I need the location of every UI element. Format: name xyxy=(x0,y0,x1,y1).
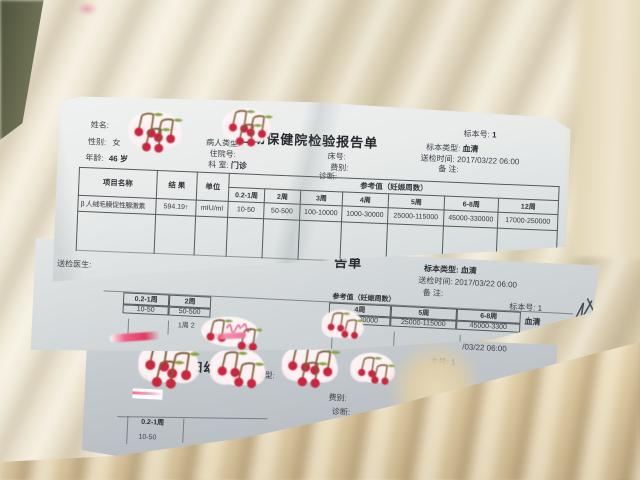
fee-label: 费别: xyxy=(328,394,347,404)
dept-value: 门诊 xyxy=(231,161,247,171)
send-time-label: 送检时间: xyxy=(420,154,455,164)
unit-header: 单位 xyxy=(196,172,229,201)
age-value: 46 岁 xyxy=(109,154,128,164)
ref-table-right-fragment: 4周 5周 6-8周 1000-30000 25000-115000 45000… xyxy=(328,302,521,332)
age-row: 年龄: 46 岁 xyxy=(85,154,128,164)
value-fragment: 10-50 xyxy=(138,434,156,443)
patient-type-label: 病人类型: xyxy=(206,139,241,149)
handwritten-scribble xyxy=(568,290,620,332)
ref-value: 45000-3300 xyxy=(456,321,520,333)
empty-cell xyxy=(76,211,156,253)
sample-type-label: 标本类型: xyxy=(426,143,461,153)
name-label: 姓名: xyxy=(91,120,110,130)
empty-cell xyxy=(154,214,196,255)
cherry-sticker-with-script xyxy=(197,312,263,351)
name-row: 姓名: xyxy=(90,121,109,131)
admission-no-label: 住院号: xyxy=(209,150,236,160)
patient-type-fragment: 人类型: xyxy=(248,371,275,381)
ref-cell: 50-500 xyxy=(264,203,301,220)
unit-cell: mIU/ml xyxy=(196,200,229,217)
ref-value: 50-500 xyxy=(168,307,210,318)
table-column-line xyxy=(331,329,333,349)
gender-row: 性别: 女 xyxy=(88,138,121,148)
table-edge-line xyxy=(117,416,267,419)
sample-no: 标本号: 1 xyxy=(469,251,502,261)
floor-corner xyxy=(0,0,56,140)
ref-cell: 10-50 xyxy=(228,201,265,218)
item-header: 项目名称 xyxy=(78,167,157,198)
empty-cell xyxy=(194,216,228,256)
table-column-line xyxy=(127,319,129,335)
results-table: 项目名称 结 果 单位 参考值（妊娠周数） 0.2-1周 2周 3周 4周 5周… xyxy=(76,167,560,270)
ref-value: 10-50 xyxy=(122,304,168,315)
pink-smudge xyxy=(76,3,98,15)
ref-value: 1000-30000 xyxy=(328,314,390,326)
ref-value: 25000-115000 xyxy=(390,317,456,329)
ref-cell: 100-10000 xyxy=(300,204,343,222)
send-time-row: 送检时间: 2017/03/22 06:00 xyxy=(420,155,519,168)
table-column-line xyxy=(126,416,128,444)
age-label: 年龄: xyxy=(85,153,104,163)
empty-cell xyxy=(340,222,388,263)
time-fragment: /03/22 06:00 xyxy=(462,343,507,354)
ref-cell: 1000-30000 xyxy=(342,206,389,224)
title-fragment: 妇幼保健 xyxy=(190,361,245,377)
table-column-line xyxy=(182,419,184,443)
empty-cell xyxy=(298,220,342,261)
sample-no-row: 标本号: 1 xyxy=(463,130,496,140)
sample-no-value: 1 xyxy=(492,130,497,139)
patient-type-label: 病人类型: xyxy=(301,368,336,378)
white-censor-box xyxy=(132,388,162,399)
gender-label: 性别: xyxy=(88,137,107,147)
empty-cell xyxy=(262,219,300,259)
note-label: 备 注: xyxy=(423,289,444,299)
week-header: 2周 xyxy=(264,189,301,204)
serum-fragment: 血清 xyxy=(524,318,540,328)
gender-value: 女 xyxy=(112,138,120,147)
bed-no-label: 床号: xyxy=(327,153,346,163)
ref-table-left-fragment: 0.2-1周 2周 10-50 50-500 xyxy=(122,292,211,317)
underlay-fragment: 1周 2 xyxy=(178,322,195,330)
cherry-sticker xyxy=(124,107,186,155)
type-fragment: 类型: xyxy=(144,371,163,381)
sample-type-value: 血清 xyxy=(462,144,478,154)
note-label: 备 注: xyxy=(438,165,459,175)
result-header: 结 果 xyxy=(156,170,197,200)
photo-of-lab-report-on-blanket: /03/22 06:00 本号: 1 类型: 妇幼保健 人类型: 病人类型: 单… xyxy=(0,0,640,480)
week-header: 0.2-1周 xyxy=(228,187,265,202)
send-time-value: 2017/03/22 06:00 xyxy=(457,155,520,166)
table-column-line xyxy=(167,321,169,335)
sample-type-row: 标本类型: 血清 xyxy=(426,144,479,155)
dept-label: 科 室: xyxy=(208,160,229,170)
sample-type: 标本类型: 血清 xyxy=(424,265,477,276)
blanket-right-fold xyxy=(561,0,640,259)
week-fragment: 0.2-1周 xyxy=(141,419,164,428)
footer-label: 送检医生: xyxy=(57,260,92,270)
report-title: 妇幼保健院检验报告单 xyxy=(238,131,378,151)
empty-cell xyxy=(226,217,264,257)
result-cell: 594.19↑ xyxy=(156,198,197,216)
title-end-fragment: 单 xyxy=(371,366,385,380)
dept-row: 科 室: 门诊 xyxy=(208,161,247,171)
sample-no-right: 标本号: 1 xyxy=(509,303,542,313)
sample-no-label: 标本号: xyxy=(463,129,490,139)
